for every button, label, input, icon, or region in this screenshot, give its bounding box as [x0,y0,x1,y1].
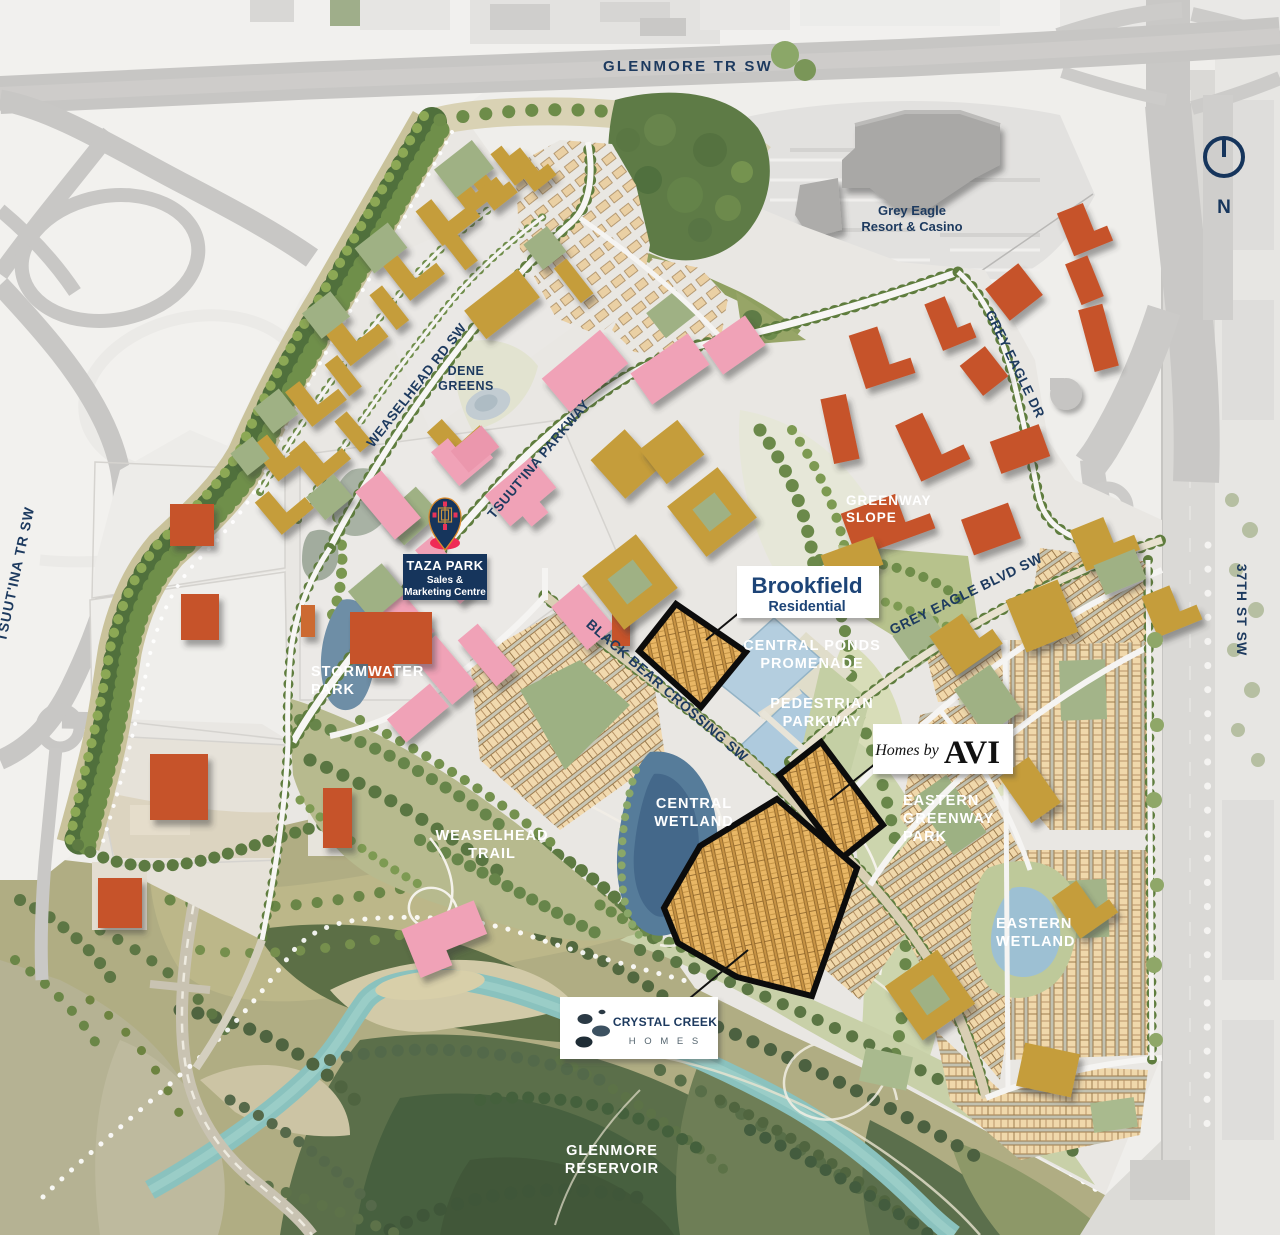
svg-text:GREENS: GREENS [438,379,494,393]
svg-text:PARKWAY: PARKWAY [783,714,862,730]
svg-text:CENTRAL PONDS: CENTRAL PONDS [743,638,881,654]
svg-text:PARK: PARK [903,829,947,845]
svg-text:DENE: DENE [448,364,485,378]
svg-text:SLOPE: SLOPE [846,510,897,525]
svg-text:Brookfield: Brookfield [751,573,862,598]
svg-text:WEASELHEAD: WEASELHEAD [435,828,548,844]
svg-text:Residential: Residential [768,599,845,615]
svg-text:GREENWAY: GREENWAY [903,811,994,827]
svg-text:Homes by: Homes by [874,742,939,759]
svg-text:WETLAND: WETLAND [996,934,1076,950]
svg-text:EASTERN: EASTERN [996,916,1072,932]
svg-text:Resort & Casino: Resort & Casino [861,219,962,234]
svg-text:RESERVOIR: RESERVOIR [565,1161,659,1177]
svg-text:CRYSTAL CREEK: CRYSTAL CREEK [613,1015,717,1029]
svg-text:N: N [1217,197,1231,218]
svg-text:WETLAND: WETLAND [654,814,734,830]
svg-text:PROMENADE: PROMENADE [760,656,863,672]
svg-text:Marketing Centre: Marketing Centre [404,587,486,598]
svg-text:GREENWAY: GREENWAY [846,493,932,508]
svg-text:TRAIL: TRAIL [468,846,516,862]
svg-text:CENTRAL: CENTRAL [656,796,732,812]
svg-text:37TH ST SW: 37TH ST SW [1234,564,1250,656]
svg-text:Sales &: Sales & [427,575,463,586]
svg-text:TAZA PARK: TAZA PARK [406,558,483,573]
svg-text:H O M E S: H O M E S [629,1036,701,1047]
svg-text:GLENMORE TR SW: GLENMORE TR SW [603,58,773,75]
svg-text:PARK: PARK [311,682,355,698]
svg-text:AVI: AVI [944,735,1000,771]
svg-text:PEDESTRIAN: PEDESTRIAN [770,696,873,712]
svg-text:EASTERN: EASTERN [903,793,979,809]
svg-text:STORMWATER: STORMWATER [311,664,424,680]
svg-text:GLENMORE: GLENMORE [566,1143,658,1159]
svg-text:Grey Eagle: Grey Eagle [878,203,946,218]
